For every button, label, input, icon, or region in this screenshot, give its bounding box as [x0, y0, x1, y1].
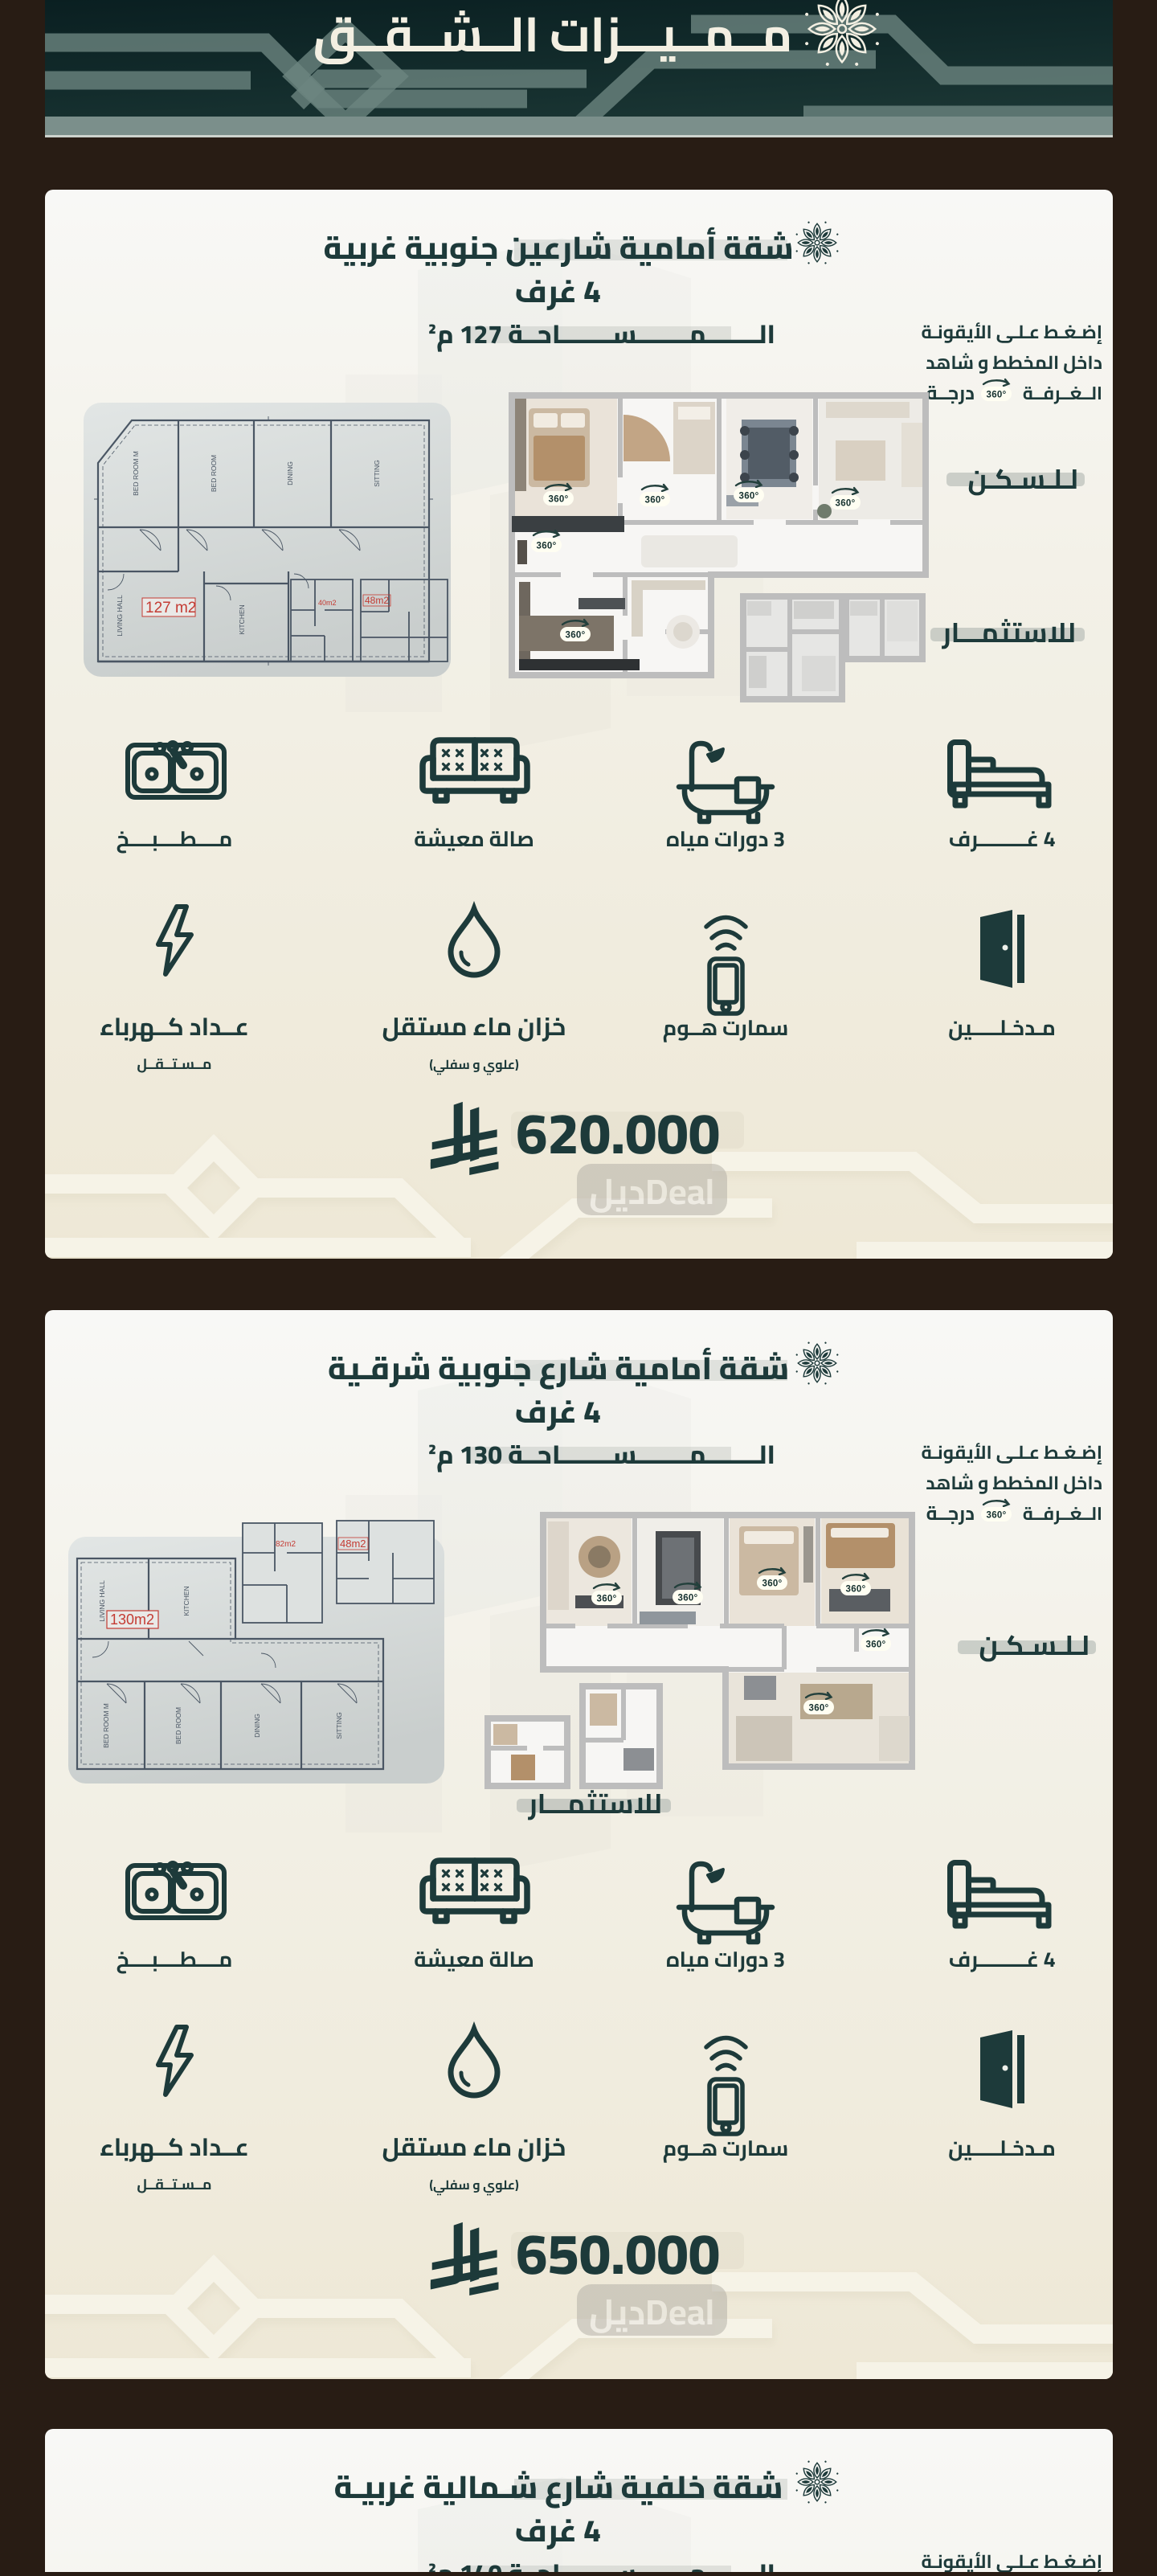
svg-text:LIVING HALL: LIVING HALL: [98, 1580, 106, 1622]
svg-text:BED ROOM M: BED ROOM M: [102, 1703, 110, 1748]
svg-text:LIVING HALL: LIVING HALL: [116, 595, 124, 637]
svg-text:KITCHEN: KITCHEN: [238, 604, 246, 634]
svg-text:KITCHEN: KITCHEN: [182, 1586, 190, 1616]
svg-text:DINING: DINING: [286, 461, 294, 485]
svg-text:DINING: DINING: [253, 1714, 261, 1738]
svg-text:82m2: 82m2: [276, 1540, 296, 1549]
svg-text:BED ROOM: BED ROOM: [210, 455, 218, 492]
svg-text:127 m2: 127 m2: [145, 600, 196, 616]
svg-text:SITTING: SITTING: [373, 460, 381, 487]
svg-text:130m2: 130m2: [110, 1612, 154, 1628]
svg-text:BED ROOM: BED ROOM: [174, 1707, 182, 1744]
svg-text:BED ROOM M: BED ROOM M: [132, 451, 140, 496]
svg-text:48m2: 48m2: [340, 1538, 366, 1550]
svg-text:48m2: 48m2: [365, 595, 389, 606]
svg-text:40m2: 40m2: [318, 599, 337, 607]
svg-text:SITTING: SITTING: [335, 1712, 343, 1739]
